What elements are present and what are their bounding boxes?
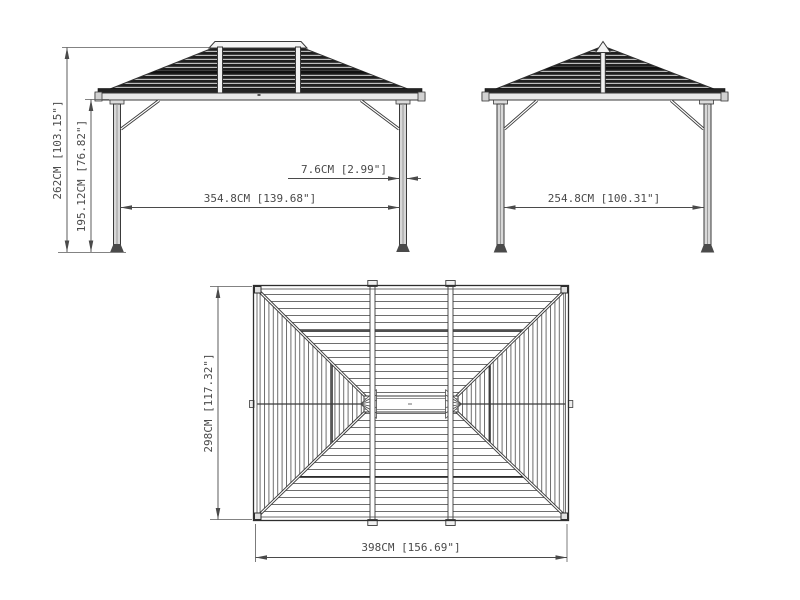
side-foot-left (494, 244, 508, 253)
dim-label-post-width: 7.6CM [2.99"] (301, 163, 387, 176)
front-roof-surface (100, 48, 418, 94)
front-foot-left (110, 244, 124, 252)
front-vent-pole-right (296, 47, 301, 93)
dim-label-top-width: 398CM [156.69"] (361, 541, 460, 554)
top-plan-view: 298CM [117.32"] 398CM [156.69"] (202, 281, 573, 563)
corner-cap-bottom-right (561, 513, 568, 520)
front-ridge-cap (209, 42, 307, 49)
front-post-mount-left (110, 100, 124, 104)
front-post-mount-right (396, 100, 410, 104)
ridge-beam (364, 396, 458, 412)
side-post-mount-left (494, 100, 508, 104)
front-brace-left (121, 101, 159, 130)
front-foot-right (396, 244, 410, 252)
side-vent-pole (601, 50, 606, 97)
dim-label-front-span: 354.8CM [139.68"] (204, 192, 317, 205)
dim-side-span: 254.8CM [100.31"] (504, 192, 704, 208)
dim-label-top-depth: 298CM [117.32"] (202, 353, 215, 452)
dim-label-post-height: 195.12CM [76.82"] (75, 120, 88, 233)
side-fascia-endcap-left (482, 92, 489, 101)
dim-top-depth: 298CM [117.32"] (202, 287, 252, 520)
side-post-mount-right (700, 100, 714, 104)
dim-front-span: 354.8CM [139.68"] (121, 192, 400, 208)
front-eave-center-mark (258, 94, 261, 96)
front-brace-right (361, 101, 399, 130)
front-roof-drip-edge (98, 89, 422, 94)
gazebo-dimension-drawing: 262CM [103.15"] 195.12CM [76.82"] 354.8C… (0, 0, 800, 600)
front-fascia-endcap-right (418, 92, 425, 101)
corner-cap-bottom-left (255, 513, 262, 520)
side-fascia-endcap-right (721, 92, 728, 101)
side-brace-left (505, 101, 538, 130)
dim-label-side-span: 254.8CM [100.31"] (548, 192, 661, 205)
front-vent-pole-left (218, 47, 223, 93)
side-peak-cap (596, 42, 611, 53)
side-foot-right (701, 244, 715, 253)
dim-top-width: 398CM [156.69"] (256, 524, 568, 562)
side-elevation-view: 254.8CM [100.31"] (482, 42, 728, 253)
corner-cap-top-right (561, 287, 568, 294)
dim-label-overall-height: 262CM [103.15"] (51, 100, 64, 199)
corner-cap-top-left (255, 287, 262, 294)
front-elevation-view: 262CM [103.15"] 195.12CM [76.82"] 354.8C… (51, 42, 425, 253)
dim-front-post-height: 195.12CM [76.82"] (75, 100, 109, 253)
drawing-canvas: 262CM [103.15"] 195.12CM [76.82"] 354.8C… (0, 0, 800, 600)
side-fascia-beam (482, 93, 728, 100)
side-brace-right (671, 101, 704, 130)
